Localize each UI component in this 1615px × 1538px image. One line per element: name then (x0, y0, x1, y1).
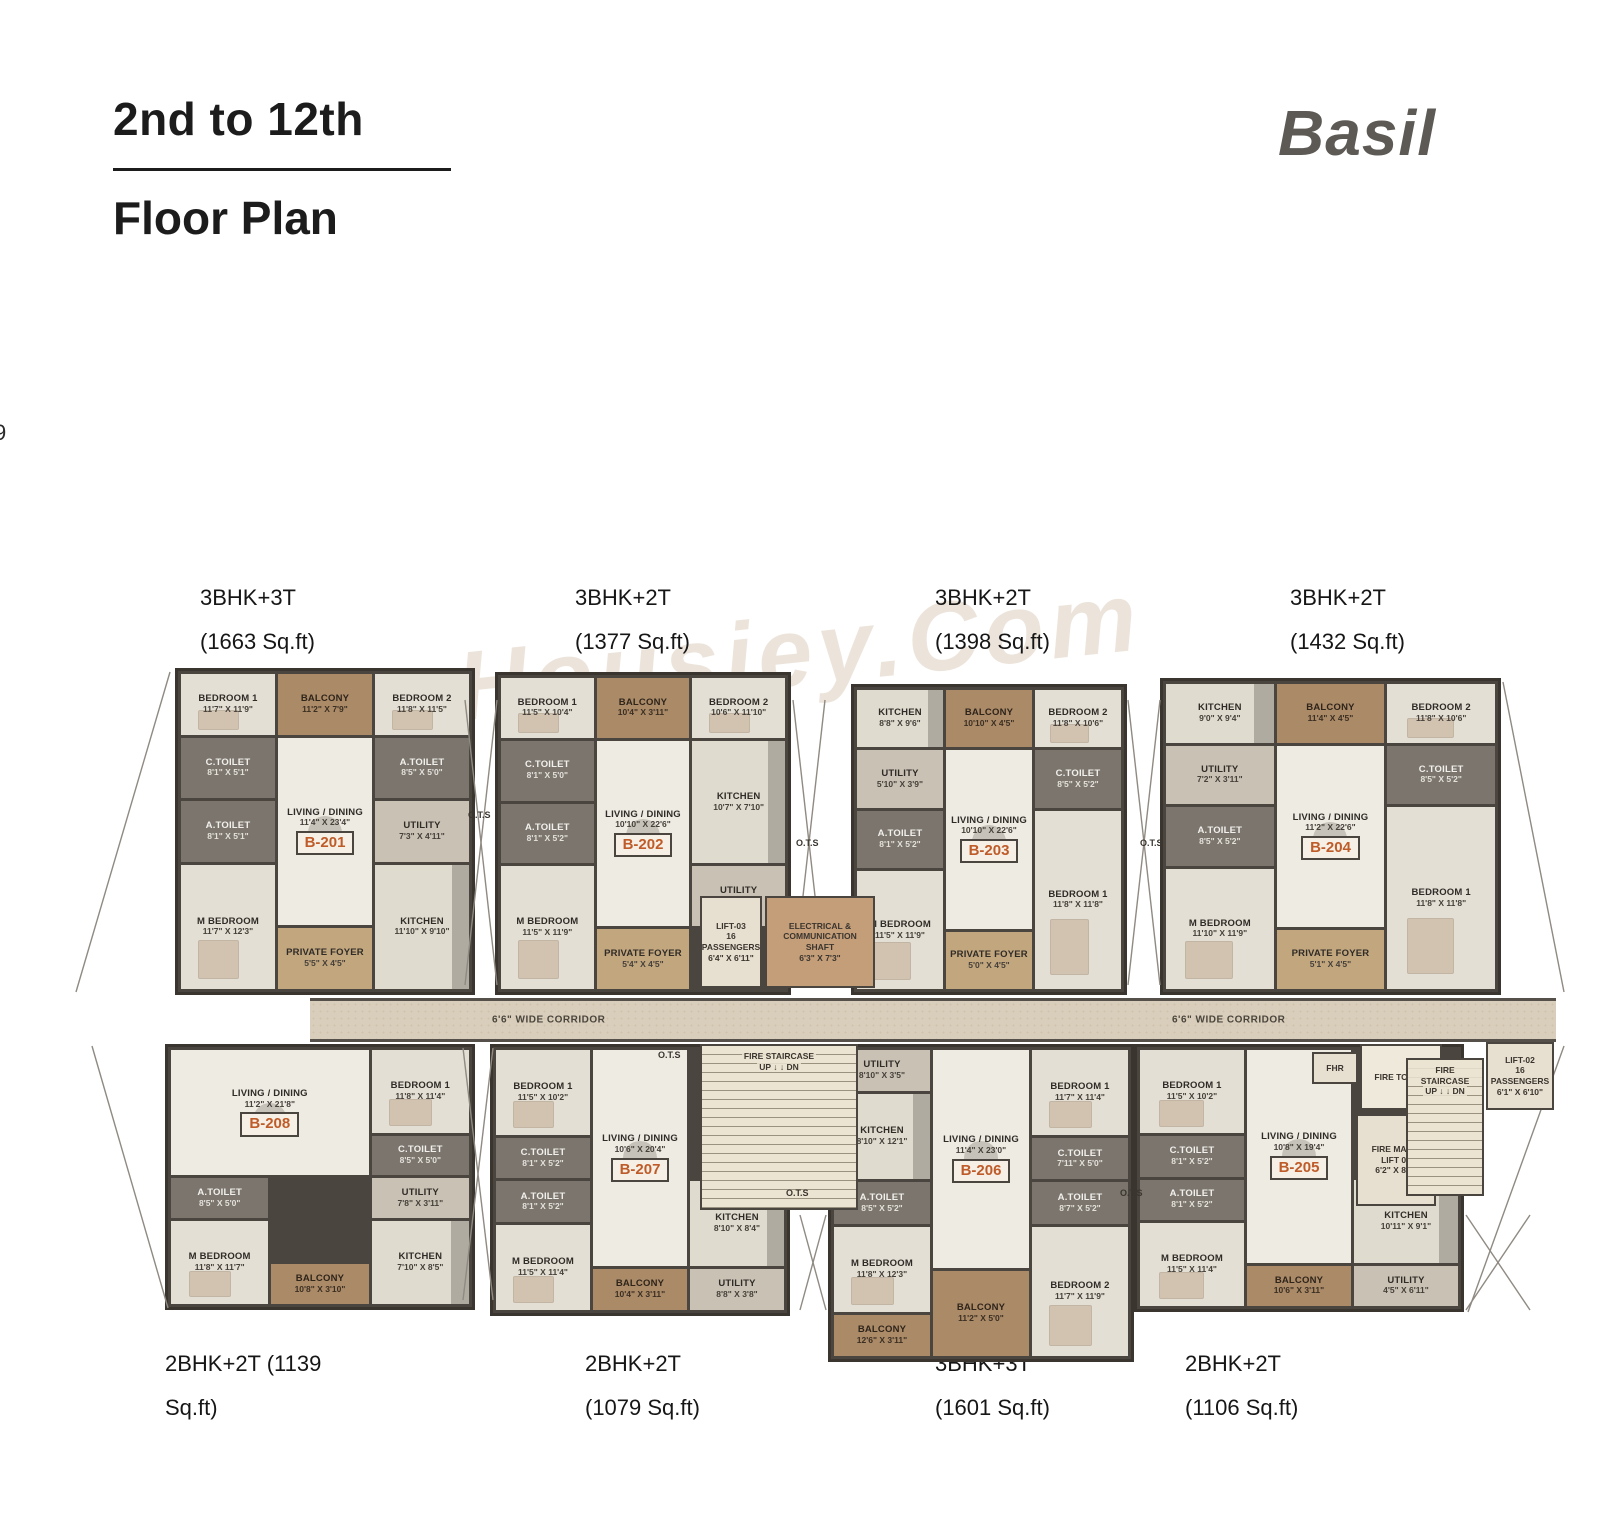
electrical-shaft-label: COMMUNICATION (783, 931, 857, 942)
room-dims: 10'10" X 22'6" (615, 820, 671, 830)
room-dims: 8'7" X 5'2" (1059, 1204, 1100, 1214)
room-dims: 8'8" X 3'8" (716, 1290, 757, 1300)
fire-staircase-right: FIRE STAIRCASEUP ↓ ↓ DN (1406, 1058, 1484, 1196)
room-dims: 11'8" X 11'8" (1053, 900, 1103, 910)
room-dims: 11'5" X 10'2" (518, 1093, 568, 1103)
room-dims: 10'6" X 3'11" (1274, 1286, 1324, 1296)
room-living-dining: LIVING / DINING10'10" X 22'6"B-203 (946, 750, 1032, 928)
room-a-toilet: A.TOILET8'7" X 5'2" (1032, 1182, 1128, 1223)
room-living-dining: LIVING / DINING11'4" X 23'4"B-201 (278, 738, 372, 926)
room-dims: 8'1" X 5'2" (522, 1202, 563, 1212)
room-balcony: BALCONY10'4" X 3'11" (597, 678, 690, 738)
room-utility: UTILITY7'3" X 4'11" (375, 801, 469, 862)
room-dims: 8'1" X 5'2" (1171, 1200, 1212, 1210)
unit-type-label-top-0: 3BHK+3T(1663 Sq.ft) (200, 576, 315, 664)
room-dims: 11'10" X 11'9" (1193, 929, 1248, 939)
room-utility: UTILITY7'2" X 3'11" (1166, 746, 1274, 805)
room-c-toilet: C.TOILET8'1" X 5'2" (1140, 1136, 1244, 1176)
room-dims: 12'6" X 3'11" (857, 1336, 907, 1346)
room-dims: 11'8" X 11'8" (1416, 899, 1466, 909)
room-bedroom-1: BEDROOM 111'8" X 11'4" (372, 1050, 469, 1133)
unit-type-label-bottom-3-area: (1106 Sq.ft) (1185, 1386, 1298, 1430)
ots-label-2: O.T.S (1140, 838, 1163, 848)
ots-label-5: O.T.S (1120, 1188, 1143, 1198)
unit-type-label-bottom-1-area: (1079 Sq.ft) (585, 1386, 700, 1430)
room-kitchen: KITCHEN10'7" X 7'10" (692, 741, 785, 864)
unit-type-label-bottom-0: 2BHK+2T (1139Sq.ft) (165, 1342, 321, 1430)
room-dims: 11'7" X 12'3" (203, 927, 253, 937)
fhr: FHR (1312, 1052, 1358, 1084)
electrical-shaft-label: 6'3" X 7'3" (799, 953, 840, 964)
room-dims: 10'6" X 20'4" (615, 1145, 666, 1155)
room-dims: 11'8" X 11'5" (397, 705, 447, 715)
unit-type-label-top-2-type: 3BHK+2T (935, 576, 1050, 620)
unit-type-label-bottom-3-type: 2BHK+2T (1185, 1342, 1298, 1386)
room-dims: 11'8" X 10'6" (1416, 714, 1466, 724)
room-dims: 8'5" X 5'0" (199, 1199, 240, 1209)
room-m-bedroom: M BEDROOM11'7" X 12'3" (181, 865, 275, 989)
page-number: 9 (0, 420, 6, 446)
fire-staircase-left-label: FIRE STAIRCASE (742, 1051, 816, 1062)
room-dims: 11'10" X 9'10" (394, 927, 449, 937)
unit-number-badge-b-205: B-205 (1270, 1156, 1329, 1180)
room-dims: 7'10" X 8'5" (397, 1263, 443, 1273)
room-utility: UTILITY8'8" X 3'8" (690, 1269, 784, 1310)
room-dims: 8'5" X 5'2" (1199, 837, 1240, 847)
room-dims: 8'1" X 5'2" (527, 834, 568, 844)
room-living-dining: LIVING / DINING11'2" X 22'6"B-204 (1277, 746, 1385, 928)
title-underline (113, 168, 451, 171)
room-kitchen: KITCHEN7'10" X 8'5" (372, 1221, 469, 1304)
room-a-toilet: A.TOILET8'1" X 5'1" (181, 801, 275, 862)
room-utility: UTILITY4'5" X 6'11" (1354, 1266, 1458, 1306)
room-dims: 8'1" X 5'1" (207, 768, 248, 778)
room-label: A.TOILET (1058, 1193, 1103, 1204)
room-c-toilet: C.TOILET8'5" X 5'0" (372, 1136, 469, 1176)
unit-type-label-top-0-area: (1663 Sq.ft) (200, 620, 315, 664)
room-balcony: BALCONY11'4" X 4'5" (1277, 684, 1385, 743)
room-m-bedroom: M BEDROOM11'5" X 11'4" (1140, 1223, 1244, 1306)
unit-number-badge-b-201: B-201 (296, 831, 355, 855)
lift-03: LIFT-0316 PASSENGERS6'4" X 6'11" (700, 896, 762, 988)
unit-type-label-top-3: 3BHK+2T(1432 Sq.ft) (1290, 576, 1405, 664)
brand-logo-basil: Basil (1278, 96, 1436, 170)
room-label: BALCONY (296, 1274, 344, 1285)
room-dims: 11'8" X 12'3" (857, 1270, 907, 1280)
room-dims: 11'5" X 10'2" (1167, 1092, 1217, 1102)
ots-label-0: O.T.S (468, 810, 491, 820)
room-bedroom-1: BEDROOM 111'5" X 10'4" (501, 678, 594, 738)
unit-number-badge-b-207: B-207 (611, 1158, 670, 1182)
corridor-label-right: 6'6" WIDE CORRIDOR (1172, 1015, 1285, 1026)
lift-03-label: 16 PASSENGERS (702, 931, 760, 952)
unit-type-label-bottom-1-type: 2BHK+2T (585, 1342, 700, 1386)
title-floor-range: 2nd to 12th (113, 92, 451, 146)
room-dims: 10'11" X 9'1" (1381, 1222, 1431, 1232)
room-c-toilet: C.TOILET8'5" X 5'2" (1035, 750, 1121, 807)
room-c-toilet: C.TOILET8'1" X 5'0" (501, 741, 594, 801)
room-a-toilet: A.TOILET8'1" X 5'2" (496, 1181, 590, 1222)
room-bedroom-1: BEDROOM 111'7" X 11'9" (181, 674, 275, 735)
room-dims: 11'2" X 7'9" (302, 705, 348, 715)
room-bedroom-2: BEDROOM 211'8" X 10'6" (1035, 690, 1121, 747)
room-dims: 11'7" X 11'9" (1055, 1292, 1105, 1302)
ots-label-4: O.T.S (786, 1188, 809, 1198)
room-c-toilet: C.TOILET8'5" X 5'2" (1387, 746, 1495, 805)
room-private-foyer: PRIVATE FOYER5'0" X 4'5" (946, 932, 1032, 989)
room-dims: 8'10" X 12'1" (857, 1137, 908, 1147)
room-dims: 9'0" X 9'4" (1199, 714, 1240, 724)
unit-type-label-bottom-0-area: Sq.ft) (165, 1386, 321, 1430)
unit-b-204: KITCHEN9'0" X 9'4"BALCONY11'4" X 4'5"BED… (1160, 678, 1501, 995)
room-dims: 5'0" X 4'5" (968, 961, 1009, 971)
room-balcony: BALCONY11'2" X 5'0" (933, 1271, 1029, 1356)
room-bedroom-1: BEDROOM 111'8" X 11'8" (1035, 811, 1121, 989)
room-kitchen: KITCHEN11'10" X 9'10" (375, 865, 469, 989)
lift-03-label: LIFT-03 (716, 921, 746, 932)
room-dims: 11'2" X 5'0" (958, 1314, 1004, 1324)
room-dims: 5'4" X 4'5" (622, 960, 663, 970)
room-label: A.TOILET (860, 1193, 905, 1204)
room-dims: 10'10" X 4'5" (964, 719, 1015, 729)
unit-b-201: BEDROOM 111'7" X 11'9"BALCONY11'2" X 7'9… (175, 668, 475, 995)
unit-type-label-bottom-0-type: 2BHK+2T (1139 (165, 1342, 321, 1386)
room-dims: 8'5" X 5'2" (1420, 775, 1461, 785)
room-utility: UTILITY7'8" X 3'11" (372, 1178, 469, 1218)
room-dims: 7'3" X 4'11" (399, 832, 445, 842)
room-dims: 4'5" X 6'11" (1383, 1286, 1429, 1296)
unit-b-203: KITCHEN8'8" X 9'6"BALCONY10'10" X 4'5"BE… (851, 684, 1127, 995)
room-bedroom-1: BEDROOM 111'8" X 11'8" (1387, 807, 1495, 989)
room-dims: 11'7" X 11'4" (1055, 1093, 1105, 1103)
room-balcony: BALCONY11'2" X 7'9" (278, 674, 372, 735)
room-dims: 7'8" X 3'11" (397, 1199, 443, 1209)
room-a-toilet: A.TOILET8'1" X 5'2" (1140, 1180, 1244, 1220)
room-dims: 8'10" X 3'5" (859, 1071, 905, 1081)
room-dims: 11'2" X 22'6" (1305, 823, 1355, 833)
room-dims: 11'5" X 11'9" (522, 928, 572, 938)
unit-b-206: UTILITY8'10" X 3'5"LIVING / DINING11'4" … (828, 1044, 1134, 1362)
fire-staircase-left-label: UP ↓ ↓ DN (757, 1062, 801, 1073)
room-bedroom-1: BEDROOM 111'5" X 10'2" (496, 1050, 590, 1135)
room-c-toilet: C.TOILET8'1" X 5'1" (181, 738, 275, 799)
room-living-dining: LIVING / DINING10'6" X 20'4"B-207 (593, 1050, 687, 1266)
room-balcony: BALCONY10'8" X 3'10" (271, 1264, 368, 1304)
lift-02-label: LIFT-02 (1505, 1055, 1535, 1066)
room-living-dining: LIVING / DINING11'4" X 23'0"B-206 (933, 1050, 1029, 1268)
room-dims: 11'2" X 21'8" (245, 1100, 295, 1110)
unit-type-label-bottom-2-area: (1601 Sq.ft) (935, 1386, 1050, 1430)
room-dims: 11'8" X 11'7" (195, 1263, 245, 1273)
room-dims: 11'5" X 11'4" (1167, 1265, 1217, 1275)
room-dims: 11'7" X 11'9" (203, 705, 253, 715)
unit-type-label-top-0-type: 3BHK+3T (200, 576, 315, 620)
room-dims: 8'1" X 5'2" (879, 840, 920, 850)
room-a-toilet: A.TOILET8'1" X 5'2" (857, 811, 943, 868)
unit-number-badge-b-204: B-204 (1301, 836, 1360, 860)
room-bedroom-2: BEDROOM 211'7" X 11'9" (1032, 1227, 1128, 1356)
room-dims: 11'5" X 11'4" (518, 1268, 568, 1278)
room-dims: 11'8" X 11'4" (395, 1092, 445, 1102)
room-dims: 5'10" X 3'9" (877, 780, 923, 790)
room-dims: 10'4" X 3'11" (615, 1290, 665, 1300)
fire-staircase-right-label: UP ↓ ↓ DN (1423, 1086, 1467, 1097)
unit-number-badge-b-208: B-208 (240, 1112, 299, 1136)
room-private-foyer: PRIVATE FOYER5'4" X 4'5" (597, 929, 690, 989)
electrical-shaft-label: ELECTRICAL & (789, 921, 851, 932)
room-a-toilet: A.TOILET8'1" X 5'2" (501, 804, 594, 864)
room-dims: 7'2" X 3'11" (1197, 775, 1243, 785)
ots-label-1: O.T.S (796, 838, 819, 848)
electrical-shaft: ELECTRICAL &COMMUNICATIONSHAFT6'3" X 7'3… (765, 896, 875, 988)
room-m-bedroom: M BEDROOM11'5" X 11'9" (501, 866, 594, 989)
fhr-label: FHR (1326, 1063, 1343, 1074)
room-bedroom-2: BEDROOM 211'8" X 11'5" (375, 674, 469, 735)
unit-type-label-bottom-1: 2BHK+2T(1079 Sq.ft) (585, 1342, 700, 1430)
room-living-dining: LIVING / DINING11'2" X 21'8"B-208 (171, 1050, 369, 1175)
room-dims: 8'1" X 5'2" (522, 1159, 563, 1169)
room-dims: 11'4" X 23'4" (300, 818, 350, 828)
room-utility: UTILITY5'10" X 3'9" (857, 750, 943, 807)
unit-type-label-top-1: 3BHK+2T(1377 Sq.ft) (575, 576, 690, 664)
room-dims: 10'6" X 11'10" (711, 708, 766, 718)
lift-02: LIFT-0216 PASSENGERS6'1" X 6'10" (1486, 1042, 1554, 1110)
room-bedroom-2: BEDROOM 210'6" X 11'10" (692, 678, 785, 738)
room-a-toilet: A.TOILET8'5" X 5'0" (171, 1178, 268, 1218)
room-kitchen: KITCHEN8'8" X 9'6" (857, 690, 943, 747)
fire-staircase-right-label: FIRE STAIRCASE (1408, 1065, 1482, 1086)
floor-plan-page: 2nd to 12th Floor Plan Basil 9 Housiey.C… (0, 0, 1615, 1538)
lift-02-label: 6'1" X 6'10" (1497, 1087, 1543, 1098)
unit-b-208: LIVING / DINING11'2" X 21'8"B-208BEDROOM… (165, 1044, 475, 1310)
unit-type-label-top-3-area: (1432 Sq.ft) (1290, 620, 1405, 664)
corridor-label-left: 6'6" WIDE CORRIDOR (492, 1015, 605, 1026)
room-dims: 8'10" X 8'4" (714, 1224, 760, 1234)
unit-type-label-bottom-3: 2BHK+2T(1106 Sq.ft) (1185, 1342, 1298, 1430)
room-dims: 11'5" X 11'9" (875, 931, 925, 941)
room-private-foyer: PRIVATE FOYER5'5" X 4'5" (278, 928, 372, 989)
room-label: C.TOILET (521, 1148, 566, 1159)
room-m-bedroom: M BEDROOM11'8" X 12'3" (834, 1227, 930, 1312)
unit-type-label-top-2: 3BHK+2T(1398 Sq.ft) (935, 576, 1050, 664)
room-dims: 11'5" X 10'4" (522, 708, 572, 718)
room-c-toilet: C.TOILET7'11" X 5'0" (1032, 1138, 1128, 1179)
room-dims: 8'1" X 5'2" (1171, 1157, 1212, 1167)
title-floor-plan: Floor Plan (113, 191, 451, 245)
room-dims: 10'8" X 19'4" (1274, 1143, 1325, 1153)
unit-type-label-top-1-area: (1377 Sq.ft) (575, 620, 690, 664)
fire-staircase-left: FIRE STAIRCASEUP ↓ ↓ DN (700, 1044, 858, 1210)
room-c-toilet: C.TOILET8'1" X 5'2" (496, 1138, 590, 1179)
room-dims: 8'5" X 5'2" (861, 1204, 902, 1214)
room-dims: 8'5" X 5'2" (1057, 780, 1098, 790)
room-dims: 8'5" X 5'0" (401, 768, 442, 778)
unit-number-badge-b-203: B-203 (960, 839, 1019, 863)
lift-03-label: 6'4" X 6'11" (708, 953, 754, 964)
unit-type-label-top-1-type: 3BHK+2T (575, 576, 690, 620)
unit-number-badge-b-202: B-202 (614, 833, 673, 857)
room-bedroom-1: BEDROOM 111'7" X 11'4" (1032, 1050, 1128, 1135)
room-balcony: BALCONY12'6" X 3'11" (834, 1315, 930, 1356)
room-dims: 8'1" X 5'1" (207, 832, 248, 842)
room-dims: 10'4" X 3'11" (618, 708, 668, 718)
room-kitchen: KITCHEN9'0" X 9'4" (1166, 684, 1274, 743)
page-title: 2nd to 12th Floor Plan (113, 92, 451, 245)
room-dims: 11'4" X 23'0" (956, 1146, 1006, 1156)
room-a-toilet: A.TOILET8'5" X 5'0" (375, 738, 469, 799)
room-dims: 8'8" X 9'6" (879, 719, 920, 729)
unit-type-label-top-3-type: 3BHK+2T (1290, 576, 1405, 620)
room-dims: 11'4" X 4'5" (1308, 714, 1354, 724)
room-bedroom-1: BEDROOM 111'5" X 10'2" (1140, 1050, 1244, 1133)
unit-type-label-top-2-area: (1398 Sq.ft) (935, 620, 1050, 664)
unit-number-badge-b-206: B-206 (952, 1159, 1011, 1183)
room-bedroom-2: BEDROOM 211'8" X 10'6" (1387, 684, 1495, 743)
room-dims: 10'10" X 22'6" (961, 826, 1017, 836)
room-dims: 10'7" X 7'10" (713, 803, 764, 813)
room-dims: 10'8" X 3'10" (295, 1285, 346, 1295)
room-dims: 7'11" X 5'0" (1057, 1159, 1103, 1169)
room-private-foyer: PRIVATE FOYER5'1" X 4'5" (1277, 930, 1385, 989)
room-balcony: BALCONY10'10" X 4'5" (946, 690, 1032, 747)
room-balcony: BALCONY10'6" X 3'11" (1247, 1266, 1351, 1306)
room-dims: 8'5" X 5'0" (400, 1156, 441, 1166)
room-a-toilet: A.TOILET8'5" X 5'2" (1166, 807, 1274, 866)
room-m-bedroom: M BEDROOM11'8" X 11'7" (171, 1221, 268, 1304)
room-m-bedroom: M BEDROOM11'5" X 11'4" (496, 1225, 590, 1310)
electrical-shaft-label: SHAFT (806, 942, 834, 953)
ots-label-3: O.T.S (658, 1050, 681, 1060)
room-dims: 5'5" X 4'5" (304, 959, 345, 969)
room-dims: 5'1" X 4'5" (1310, 960, 1351, 970)
room-living-dining: LIVING / DINING10'10" X 22'6"B-202 (597, 741, 690, 926)
room-dims: 11'8" X 10'6" (1053, 719, 1103, 729)
corridor: 6'6" WIDE CORRIDOR 6'6" WIDE CORRIDOR (310, 998, 1556, 1042)
room-m-bedroom: M BEDROOM11'10" X 11'9" (1166, 869, 1274, 989)
room-dims: 8'1" X 5'0" (527, 771, 568, 781)
room-balcony: BALCONY10'4" X 3'11" (593, 1269, 687, 1310)
lift-02-label: 16 PASSENGERS (1488, 1065, 1552, 1086)
